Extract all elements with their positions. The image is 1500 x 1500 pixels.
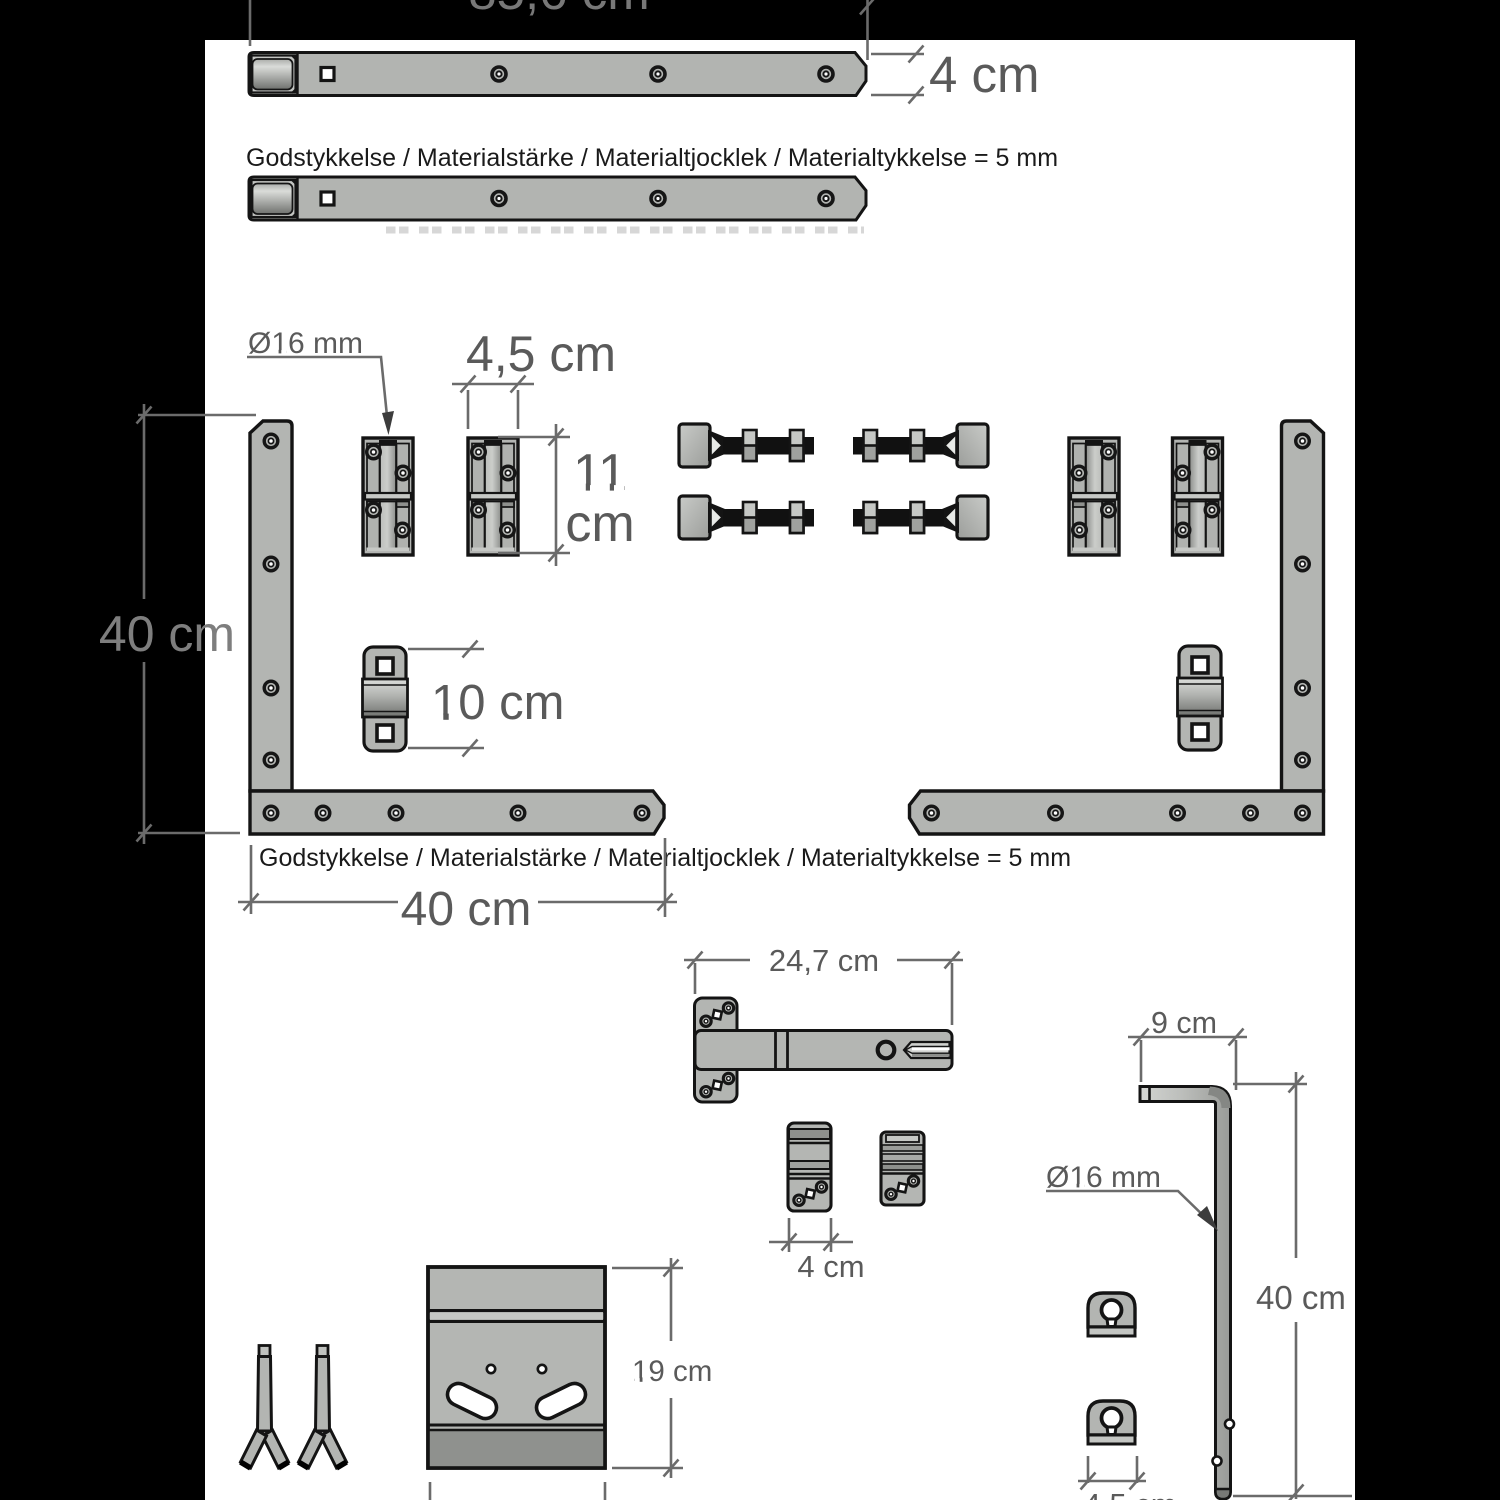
svg-text:85,6 cm: 85,6 cm [468, 0, 649, 20]
svg-text:Ø16 mm: Ø16 mm [248, 327, 363, 360]
svg-text:11: 11 [573, 444, 627, 502]
svg-text:24,7 cm: 24,7 cm [769, 943, 879, 978]
svg-text:4,5 cm: 4,5 cm [1083, 1487, 1176, 1500]
svg-text:4 cm: 4 cm [797, 1249, 864, 1284]
svg-text:19 cm: 19 cm [632, 1355, 712, 1388]
svg-text:4 cm: 4 cm [929, 46, 1040, 103]
svg-text:40 cm: 40 cm [1256, 1279, 1346, 1316]
svg-text:40 cm: 40 cm [401, 883, 532, 936]
svg-text:10 cm: 10 cm [431, 676, 564, 730]
svg-text:Ø16 mm: Ø16 mm [1046, 1161, 1161, 1194]
svg-text:9 cm: 9 cm [1151, 1006, 1217, 1040]
svg-text:cm: cm [565, 495, 634, 553]
svg-text:Godstykkelse / Materialstärke: Godstykkelse / Materialstärke / Material… [246, 144, 1058, 172]
svg-text:40 cm: 40 cm [99, 606, 235, 662]
svg-text:4,5 cm: 4,5 cm [466, 326, 616, 382]
